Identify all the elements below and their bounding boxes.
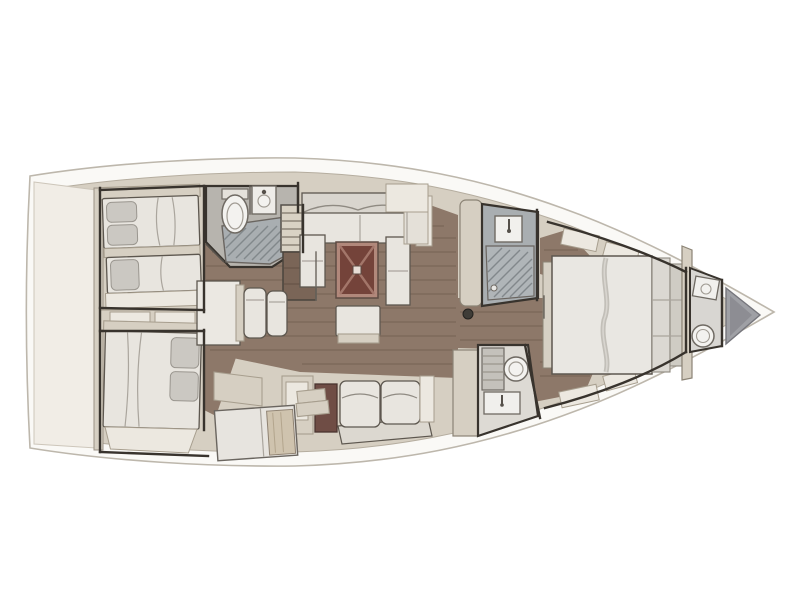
salon-table <box>336 242 378 298</box>
drain <box>491 285 497 291</box>
pillar-and-post <box>460 200 482 319</box>
settee-cushion <box>381 381 420 424</box>
headboard-panel <box>652 258 670 372</box>
floorplan-page <box>0 0 800 600</box>
toilet <box>692 325 714 347</box>
settee-cushion <box>340 381 380 427</box>
settee-arm <box>420 376 434 422</box>
headboard-panel <box>670 264 682 366</box>
dinette-table-edge <box>236 285 244 341</box>
settee-starboard <box>338 376 434 444</box>
bow-head <box>690 268 722 352</box>
toilet <box>222 195 248 233</box>
forward-shower <box>482 204 538 306</box>
cabinet-pillar <box>460 200 482 306</box>
dinette-chair <box>244 288 266 338</box>
pillow <box>110 259 139 290</box>
aft-cabin-starboard <box>100 321 203 454</box>
step <box>296 400 329 416</box>
ottoman-base <box>338 334 379 343</box>
table-center <box>353 266 361 274</box>
angled-cabinet <box>214 372 262 406</box>
ottoman <box>336 306 380 336</box>
yacht-floorplan-svg <box>0 0 800 600</box>
faucet <box>262 190 266 194</box>
pillow <box>171 338 200 369</box>
pillow <box>107 224 138 245</box>
washbasin <box>701 284 711 294</box>
dinette <box>197 281 287 345</box>
dinette-chair <box>267 291 287 336</box>
foot-locker <box>105 290 201 308</box>
head-pillar <box>453 350 478 436</box>
wardrobe <box>214 405 297 460</box>
transom-area <box>34 182 96 448</box>
mast-post <box>463 309 473 319</box>
aft-steps <box>295 388 329 416</box>
pillow <box>170 372 199 402</box>
aft-cabin-port <box>100 184 204 308</box>
washbasin <box>258 195 270 207</box>
foot-bench <box>104 427 197 453</box>
sideboard-top <box>386 184 428 212</box>
toilet <box>504 357 528 381</box>
floorplan-figure <box>0 0 800 600</box>
vanity-drawers <box>482 348 504 390</box>
faucet-head <box>500 403 504 407</box>
faucet-head <box>507 229 511 233</box>
pillow <box>106 201 137 222</box>
stern-platform <box>34 182 103 450</box>
